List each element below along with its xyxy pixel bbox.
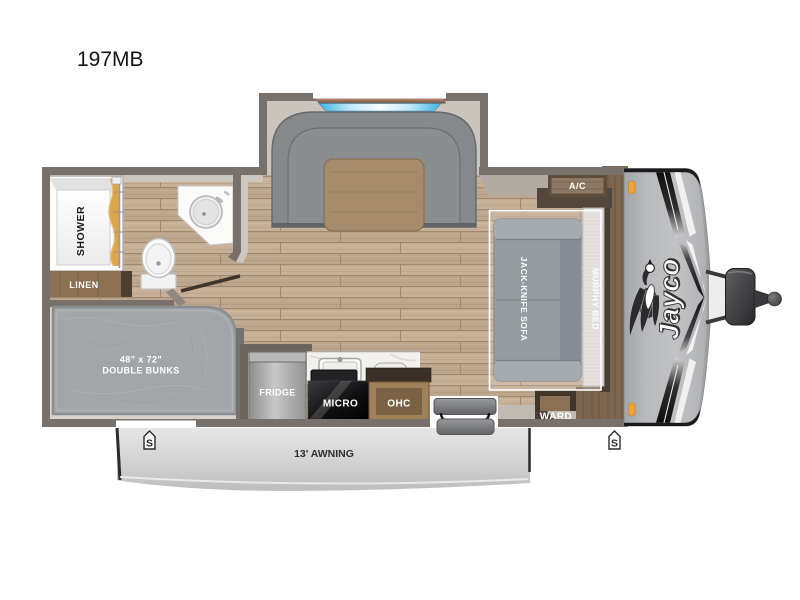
svg-text:13' AWNING: 13' AWNING <box>294 448 354 460</box>
svg-text:SHOWER: SHOWER <box>75 206 87 256</box>
svg-text:FRIDGE: FRIDGE <box>259 388 295 398</box>
svg-text:S: S <box>611 438 618 450</box>
svg-text:MURPHY BED: MURPHY BED <box>591 268 601 330</box>
svg-text:197MB: 197MB <box>77 48 144 71</box>
svg-text:A/C: A/C <box>569 181 586 191</box>
svg-text:MICRO: MICRO <box>323 399 358 410</box>
svg-text:LINEN: LINEN <box>69 280 99 290</box>
svg-text:Jayco: Jayco <box>654 258 685 339</box>
svg-text:DOUBLE BUNKS: DOUBLE BUNKS <box>102 366 179 376</box>
svg-text:OHC: OHC <box>387 399 410 410</box>
svg-text:48" x 72": 48" x 72" <box>120 355 162 365</box>
svg-text:S: S <box>146 438 153 450</box>
